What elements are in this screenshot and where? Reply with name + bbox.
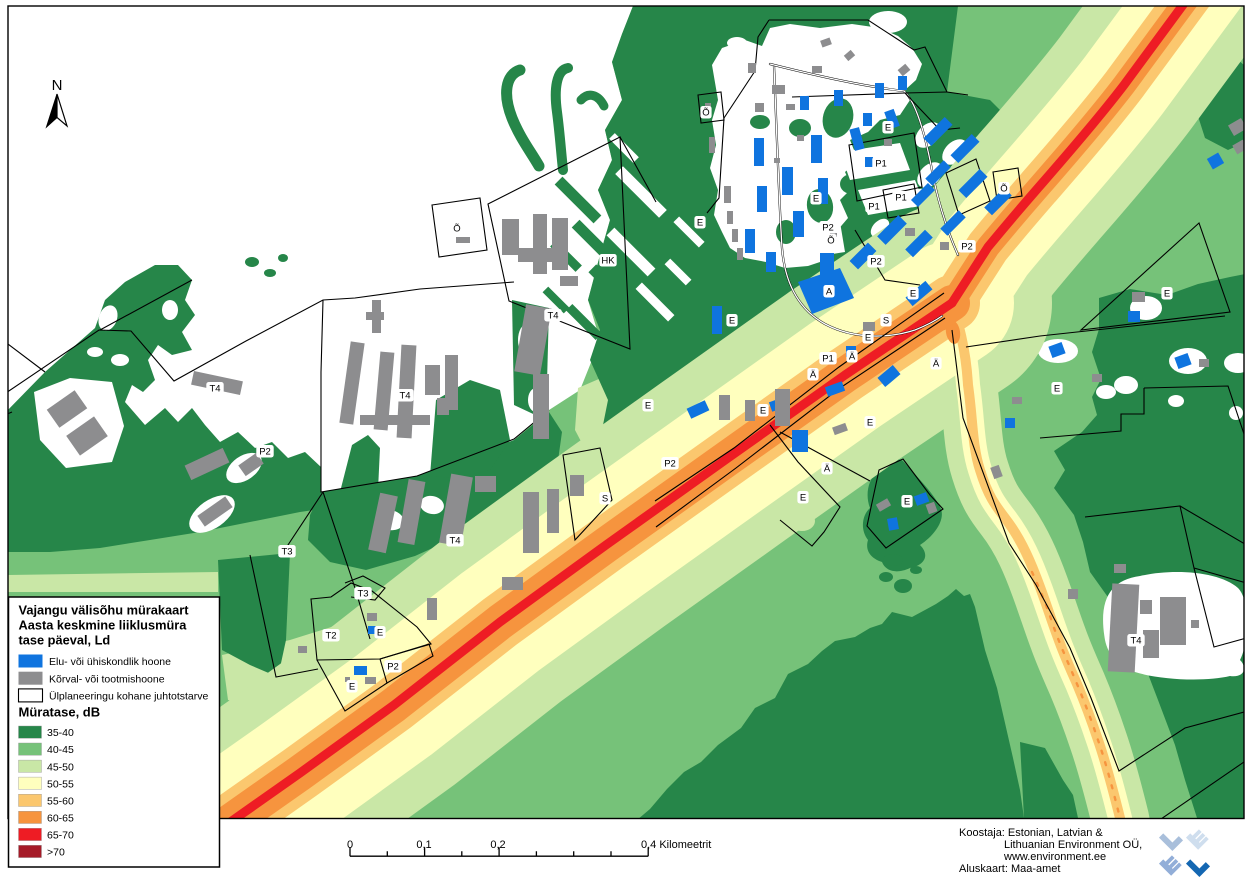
svg-text:>70: >70 (47, 847, 65, 859)
svg-text:Kõrval- või tootmishoone: Kõrval- või tootmishoone (49, 673, 165, 685)
svg-text:E: E (904, 497, 910, 508)
svg-text:65-70: 65-70 (47, 830, 74, 842)
svg-text:P1: P1 (875, 159, 887, 170)
svg-text:E: E (697, 218, 703, 229)
svg-text:Elu- või ühiskondlik hoone: Elu- või ühiskondlik hoone (49, 656, 171, 668)
svg-text:Ä: Ä (849, 352, 856, 363)
svg-text:E: E (885, 123, 891, 134)
svg-text:0,2: 0,2 (490, 839, 505, 851)
svg-text:E: E (867, 418, 873, 429)
svg-text:Lithuanian Environment OÜ,: Lithuanian Environment OÜ, (1004, 839, 1142, 851)
svg-text:Aasta keskmine liiklusmüra: Aasta keskmine liiklusmüra (19, 618, 188, 633)
svg-text:Ä: Ä (933, 359, 940, 370)
svg-text:www.environment.ee: www.environment.ee (1003, 851, 1106, 863)
svg-text:Õ: Õ (827, 236, 834, 247)
svg-text:T4: T4 (449, 536, 460, 547)
svg-text:T4: T4 (547, 311, 558, 322)
svg-text:P2: P2 (664, 459, 676, 470)
svg-text:0: 0 (347, 839, 353, 851)
svg-text:N: N (52, 77, 63, 94)
svg-text:S: S (883, 316, 889, 327)
svg-text:45-50: 45-50 (47, 761, 74, 773)
svg-text:T3: T3 (357, 589, 368, 600)
svg-text:Õ: Õ (702, 108, 709, 119)
svg-text:E: E (1054, 384, 1060, 395)
svg-text:T4: T4 (399, 391, 410, 402)
svg-text:A: A (826, 287, 833, 298)
svg-text:E: E (729, 316, 735, 327)
svg-text:E: E (800, 493, 806, 504)
svg-text:E: E (910, 289, 916, 300)
svg-text:P1: P1 (895, 193, 907, 204)
svg-text:P1: P1 (822, 354, 834, 365)
svg-text:E: E (645, 401, 651, 412)
svg-text:E: E (813, 194, 819, 205)
svg-text:T4: T4 (1130, 636, 1141, 647)
svg-text:E: E (349, 682, 355, 693)
svg-text:50-55: 50-55 (47, 778, 74, 790)
svg-text:P2: P2 (259, 447, 271, 458)
svg-text:E: E (377, 628, 383, 639)
svg-text:P2: P2 (387, 662, 399, 673)
svg-text:tase päeval, Ld: tase päeval, Ld (19, 633, 111, 648)
svg-text:55-60: 55-60 (47, 795, 74, 807)
svg-text:T2: T2 (325, 631, 336, 642)
svg-text:P1: P1 (868, 202, 880, 213)
svg-text:E: E (760, 406, 766, 417)
svg-text:P2: P2 (961, 242, 973, 253)
svg-text:Vajangu välisõhu mürakaart: Vajangu välisõhu mürakaart (19, 603, 190, 618)
svg-text:E: E (865, 333, 871, 344)
svg-text:60-65: 60-65 (47, 812, 74, 824)
svg-text:E: E (1164, 289, 1170, 300)
svg-text:40-45: 40-45 (47, 744, 74, 756)
svg-text:Aluskaart: Maa-amet: Aluskaart: Maa-amet (959, 863, 1060, 875)
svg-text:S: S (602, 494, 608, 505)
svg-text:0,4 Kilomeetrit: 0,4 Kilomeetrit (641, 839, 711, 851)
svg-text:T4: T4 (209, 384, 220, 395)
svg-text:35-40: 35-40 (47, 727, 74, 739)
svg-text:0,1: 0,1 (416, 839, 431, 851)
svg-text:T3: T3 (281, 547, 292, 558)
svg-text:Ä: Ä (824, 464, 831, 475)
svg-text:Õ: Õ (1000, 184, 1007, 195)
svg-text:Koostaja: Estonian, Latvian &: Koostaja: Estonian, Latvian & (959, 827, 1103, 839)
svg-text:P2: P2 (870, 257, 882, 268)
svg-text:Õ: Õ (453, 224, 460, 235)
svg-text:Ülplaneeringu kohane juhtotsta: Ülplaneeringu kohane juhtotstarve (49, 691, 209, 703)
svg-text:HK: HK (601, 256, 615, 267)
svg-text:P2: P2 (822, 223, 834, 234)
svg-text:Müratase, dB: Müratase, dB (19, 705, 101, 720)
svg-text:Ä: Ä (810, 370, 817, 381)
